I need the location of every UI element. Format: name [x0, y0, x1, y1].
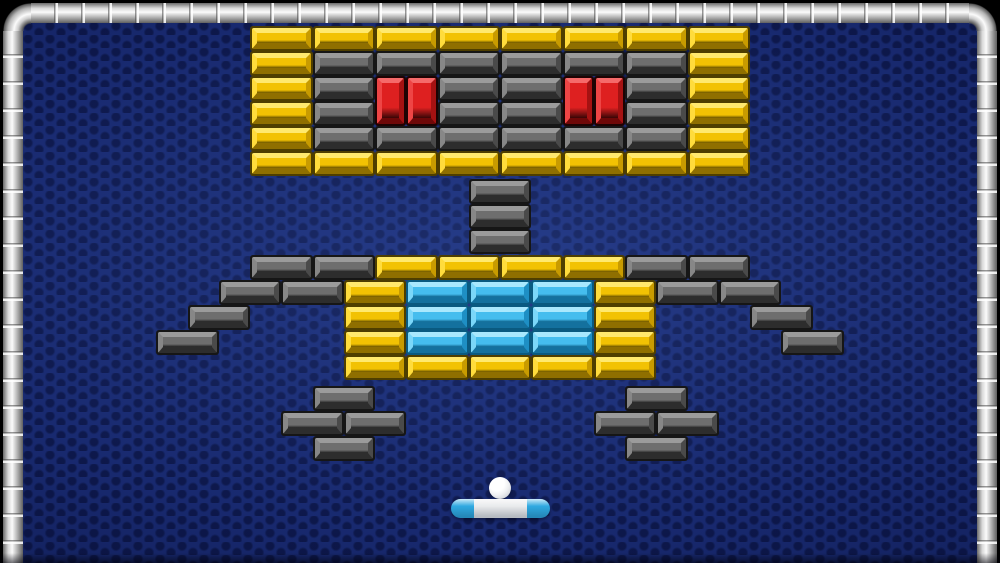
brick-face: [658, 413, 717, 434]
brick-red: [594, 76, 625, 126]
brick-face: [690, 128, 749, 149]
brick-face: [221, 282, 280, 303]
brick-gray: [313, 436, 376, 461]
brick-gray: [313, 386, 376, 411]
brick-face: [627, 257, 686, 278]
brick-face: [690, 153, 749, 174]
frame-corner-top-left: [3, 3, 31, 31]
brick-face: [440, 53, 499, 74]
brick-red: [406, 76, 437, 126]
brick-gray: [375, 51, 438, 76]
brick-face: [252, 153, 311, 174]
brick-gray: [313, 255, 376, 280]
brick-face: [565, 28, 624, 49]
brick-gray: [625, 386, 688, 411]
brick-gray: [625, 51, 688, 76]
brick-gray: [500, 51, 563, 76]
brick-gray: [625, 76, 688, 101]
brick-face: [502, 257, 561, 278]
brick-yellow: [313, 151, 376, 176]
brick-face: [377, 257, 436, 278]
brick-face: [533, 357, 592, 378]
brick-face: [346, 332, 405, 353]
brick-gray: [563, 126, 626, 151]
brick-face: [502, 53, 561, 74]
brick-gray: [500, 101, 563, 126]
brick-cyan: [469, 305, 532, 330]
brick-face: [377, 28, 436, 49]
frame-corner-top-right: [969, 3, 997, 31]
brick-gray: [313, 126, 376, 151]
brick-yellow: [563, 255, 626, 280]
brick-face: [502, 153, 561, 174]
brick-gray: [438, 126, 501, 151]
brick-gray: [438, 76, 501, 101]
brick-red: [375, 76, 406, 126]
brick-face: [440, 257, 499, 278]
brick-face: [440, 28, 499, 49]
brick-face: [346, 282, 405, 303]
brick-face: [627, 128, 686, 149]
brick-yellow: [469, 355, 532, 380]
brick-yellow: [438, 26, 501, 51]
brick-face: [502, 103, 561, 124]
brick-face: [565, 128, 624, 149]
brick-face: [252, 128, 311, 149]
brick-yellow: [625, 26, 688, 51]
brick-cyan: [531, 280, 594, 305]
brick-face: [471, 206, 530, 227]
brick-face: [315, 388, 374, 409]
brick-gray: [344, 411, 407, 436]
brick-gray: [500, 126, 563, 151]
brick-cyan: [531, 305, 594, 330]
brick-face: [690, 103, 749, 124]
brick-red: [563, 76, 594, 126]
brick-yellow: [625, 151, 688, 176]
brick-yellow: [688, 26, 751, 51]
brick-face: [471, 332, 530, 353]
brick-yellow: [688, 126, 751, 151]
brick-yellow: [375, 26, 438, 51]
brick-face: [440, 128, 499, 149]
brick-yellow: [313, 26, 376, 51]
brick-face: [315, 28, 374, 49]
brick-gray: [719, 280, 782, 305]
brick-gray: [688, 255, 751, 280]
brick-face: [190, 307, 249, 328]
brick-gray: [313, 51, 376, 76]
brick-yellow: [594, 280, 657, 305]
brick-yellow: [500, 255, 563, 280]
brick-yellow: [375, 151, 438, 176]
brick-face: [377, 128, 436, 149]
brick-face: [158, 332, 217, 353]
brick-gray: [281, 411, 344, 436]
brick-face: [565, 257, 624, 278]
brick-face: [252, 28, 311, 49]
brick-yellow: [563, 151, 626, 176]
brick-face: [252, 103, 311, 124]
brick-face: [690, 257, 749, 278]
brick-gray: [375, 126, 438, 151]
brick-yellow: [406, 355, 469, 380]
brick-gray: [219, 280, 282, 305]
brick-gray: [469, 204, 532, 229]
brick-face: [502, 78, 561, 99]
brick-gray: [563, 51, 626, 76]
brick-yellow: [250, 126, 313, 151]
brick-face: [721, 282, 780, 303]
brick-face: [658, 282, 717, 303]
brick-yellow: [688, 76, 751, 101]
brick-face: [471, 181, 530, 202]
brick-gray: [594, 411, 657, 436]
brick-face: [252, 78, 311, 99]
brick-yellow: [250, 51, 313, 76]
brick-face: [408, 357, 467, 378]
brick-gray: [625, 436, 688, 461]
brick-yellow: [344, 305, 407, 330]
brick-face: [471, 307, 530, 328]
brick-face: [471, 357, 530, 378]
brick-face: [783, 332, 842, 353]
brick-face: [315, 78, 374, 99]
game-stage: [0, 0, 1000, 563]
brick-face: [315, 257, 374, 278]
brick-face: [533, 282, 592, 303]
brick-yellow: [531, 355, 594, 380]
brick-gray: [313, 76, 376, 101]
brick-face: [565, 78, 592, 124]
brick-gray: [625, 126, 688, 151]
brick-face: [627, 388, 686, 409]
brick-face: [471, 282, 530, 303]
brick-face: [502, 128, 561, 149]
brick-yellow: [438, 151, 501, 176]
brick-face: [565, 53, 624, 74]
ball: [489, 477, 511, 499]
brick-face: [252, 257, 311, 278]
brick-yellow: [250, 101, 313, 126]
brick-face: [408, 78, 435, 124]
brick-face: [533, 332, 592, 353]
brick-gray: [313, 101, 376, 126]
brick-face: [377, 78, 404, 124]
brick-face: [440, 78, 499, 99]
brick-gray: [656, 280, 719, 305]
brick-cyan: [469, 330, 532, 355]
brick-yellow: [375, 255, 438, 280]
brick-face: [440, 103, 499, 124]
frame-right-rail: [977, 31, 997, 563]
brick-face: [315, 103, 374, 124]
brick-face: [627, 153, 686, 174]
brick-face: [502, 28, 561, 49]
brick-yellow: [438, 255, 501, 280]
brick-gray: [156, 330, 219, 355]
brick-face: [283, 413, 342, 434]
brick-yellow: [500, 151, 563, 176]
brick-face: [690, 53, 749, 74]
brick-gray: [500, 76, 563, 101]
brick-face: [596, 307, 655, 328]
brick-gray: [438, 101, 501, 126]
brick-yellow: [344, 355, 407, 380]
brick-yellow: [250, 76, 313, 101]
brick-face: [315, 438, 374, 459]
brick-face: [596, 282, 655, 303]
brick-cyan: [406, 330, 469, 355]
brick-gray: [188, 305, 251, 330]
brick-gray: [625, 255, 688, 280]
brick-cyan: [469, 280, 532, 305]
brick-face: [596, 78, 623, 124]
brick-face: [283, 282, 342, 303]
brick-gray: [656, 411, 719, 436]
brick-face: [346, 357, 405, 378]
brick-yellow: [688, 151, 751, 176]
brick-face: [627, 53, 686, 74]
brick-face: [408, 282, 467, 303]
brick-cyan: [531, 330, 594, 355]
brick-gray: [781, 330, 844, 355]
brick-gray: [750, 305, 813, 330]
brick-face: [627, 78, 686, 99]
brick-face: [252, 53, 311, 74]
brick-face: [408, 307, 467, 328]
brick-face: [596, 332, 655, 353]
brick-yellow: [500, 26, 563, 51]
brick-face: [471, 231, 530, 252]
brick-yellow: [250, 26, 313, 51]
brick-face: [752, 307, 811, 328]
brick-face: [565, 153, 624, 174]
brick-cyan: [406, 305, 469, 330]
frame-top-rail: [31, 3, 969, 23]
brick-face: [408, 332, 467, 353]
brick-face: [533, 307, 592, 328]
brick-gray: [438, 51, 501, 76]
brick-yellow: [688, 51, 751, 76]
brick-face: [346, 307, 405, 328]
frame-left-rail: [3, 31, 23, 563]
brick-gray: [250, 255, 313, 280]
brick-yellow: [594, 305, 657, 330]
brick-face: [627, 28, 686, 49]
brick-face: [377, 53, 436, 74]
brick-yellow: [344, 330, 407, 355]
brick-face: [627, 103, 686, 124]
brick-yellow: [344, 280, 407, 305]
brick-yellow: [594, 355, 657, 380]
brick-face: [315, 153, 374, 174]
brick-yellow: [688, 101, 751, 126]
brick-face: [315, 128, 374, 149]
brick-gray: [469, 229, 532, 254]
brick-face: [346, 413, 405, 434]
brick-face: [690, 28, 749, 49]
brick-face: [377, 153, 436, 174]
brick-face: [596, 357, 655, 378]
brick-yellow: [594, 330, 657, 355]
brick-cyan: [406, 280, 469, 305]
brick-yellow: [250, 151, 313, 176]
brick-face: [315, 53, 374, 74]
brick-gray: [625, 101, 688, 126]
brick-gray: [281, 280, 344, 305]
brick-face: [440, 153, 499, 174]
brick-face: [690, 78, 749, 99]
brick-face: [627, 438, 686, 459]
brick-yellow: [563, 26, 626, 51]
brick-face: [596, 413, 655, 434]
brick-gray: [469, 179, 532, 204]
paddle[interactable]: [451, 499, 550, 518]
